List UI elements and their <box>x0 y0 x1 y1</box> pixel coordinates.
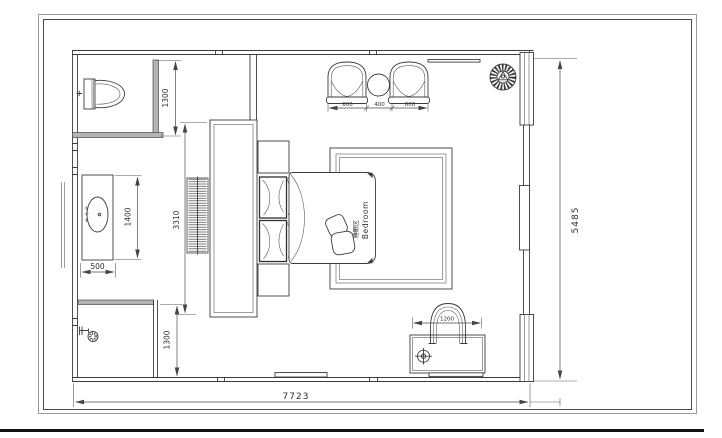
armchair-right-icon <box>389 62 430 104</box>
column-top-right <box>520 53 534 126</box>
radiator-hatch-strip <box>187 177 208 255</box>
partition-stub <box>250 55 257 120</box>
side-table-icon <box>368 74 390 96</box>
nightstand-bottom <box>258 264 289 296</box>
svg-text:3310: 3310 <box>172 210 181 229</box>
pillow-top <box>260 177 287 218</box>
seating-group <box>327 62 430 104</box>
wardrobe-inner-line <box>214 125 253 313</box>
svg-text:500: 500 <box>90 262 105 271</box>
pillow-bottom <box>260 221 287 262</box>
toilet-icon <box>77 79 125 109</box>
bed-cushion-large <box>330 230 355 255</box>
dim-vanity-width: 500 <box>81 262 116 278</box>
svg-text:1300: 1300 <box>163 330 172 349</box>
nightstand-top <box>258 141 289 173</box>
floor-plan-drawing: 睡眠区 Bedroom <box>0 0 722 438</box>
wall-ledge-bottom-left <box>275 373 327 378</box>
wall-ledge-top <box>428 60 480 63</box>
column-bottom-right <box>520 315 534 382</box>
dim-desk-chair: 1200 <box>413 317 482 329</box>
right-wall-features <box>520 53 534 382</box>
shower-room <box>78 300 158 378</box>
toilet-room-right-wall <box>153 60 159 133</box>
desk <box>410 335 485 373</box>
wall-recess <box>520 186 530 251</box>
shower-top-wall <box>78 300 154 305</box>
svg-text:7723: 7723 <box>283 392 310 402</box>
shower-right-wall <box>154 300 158 378</box>
armchair-left-icon <box>327 62 368 104</box>
toilet-room <box>73 60 164 138</box>
dim-vanity-length: 1400 <box>115 176 142 260</box>
dim-seating: 600 400 600 <box>328 102 428 112</box>
dim-shower-depth: 1300 <box>160 305 183 376</box>
wardrobe <box>210 120 257 317</box>
svg-text:600: 600 <box>342 102 353 108</box>
wall-ledge-bottom-right <box>429 373 483 377</box>
desk-group <box>410 304 485 374</box>
svg-text:600: 600 <box>405 102 416 108</box>
dim-room-width: 7723 <box>74 384 561 408</box>
svg-text:1400: 1400 <box>124 207 133 226</box>
exterior-wall-line <box>62 182 65 268</box>
svg-text:400: 400 <box>374 102 385 108</box>
zone-label-english: Bedroom <box>361 201 370 239</box>
toilet-room-bottom-wall <box>73 133 164 138</box>
svg-text:1200: 1200 <box>440 317 454 323</box>
dim-room-depth: 5485 <box>534 59 582 382</box>
bed: 睡眠区 Bedroom <box>258 141 376 296</box>
zone-label-chinese: 睡眠区 <box>352 220 360 238</box>
floor-plan-canvas: 睡眠区 Bedroom <box>0 0 722 438</box>
dim-toilet-depth: 1300 <box>156 61 181 137</box>
vanity-counter <box>82 175 113 260</box>
plant-icon <box>490 64 516 90</box>
svg-text:5485: 5485 <box>571 207 581 234</box>
shower-head-icon <box>80 327 99 342</box>
svg-text:1300: 1300 <box>161 88 170 107</box>
